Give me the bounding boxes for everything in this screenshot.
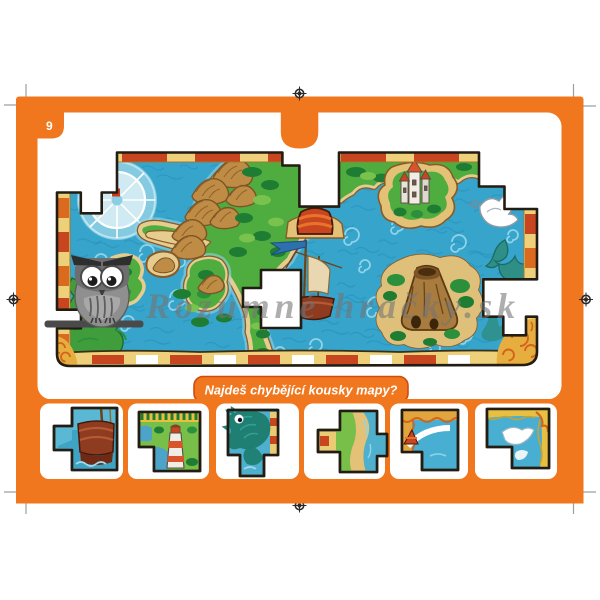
svg-text:Rozumné hračky.sk: Rozumné hračky.sk bbox=[145, 286, 520, 326]
svg-text:Najdeš chybějící kousky mapy?: Najdeš chybějící kousky mapy? bbox=[205, 383, 398, 398]
svg-text:9: 9 bbox=[46, 119, 53, 133]
